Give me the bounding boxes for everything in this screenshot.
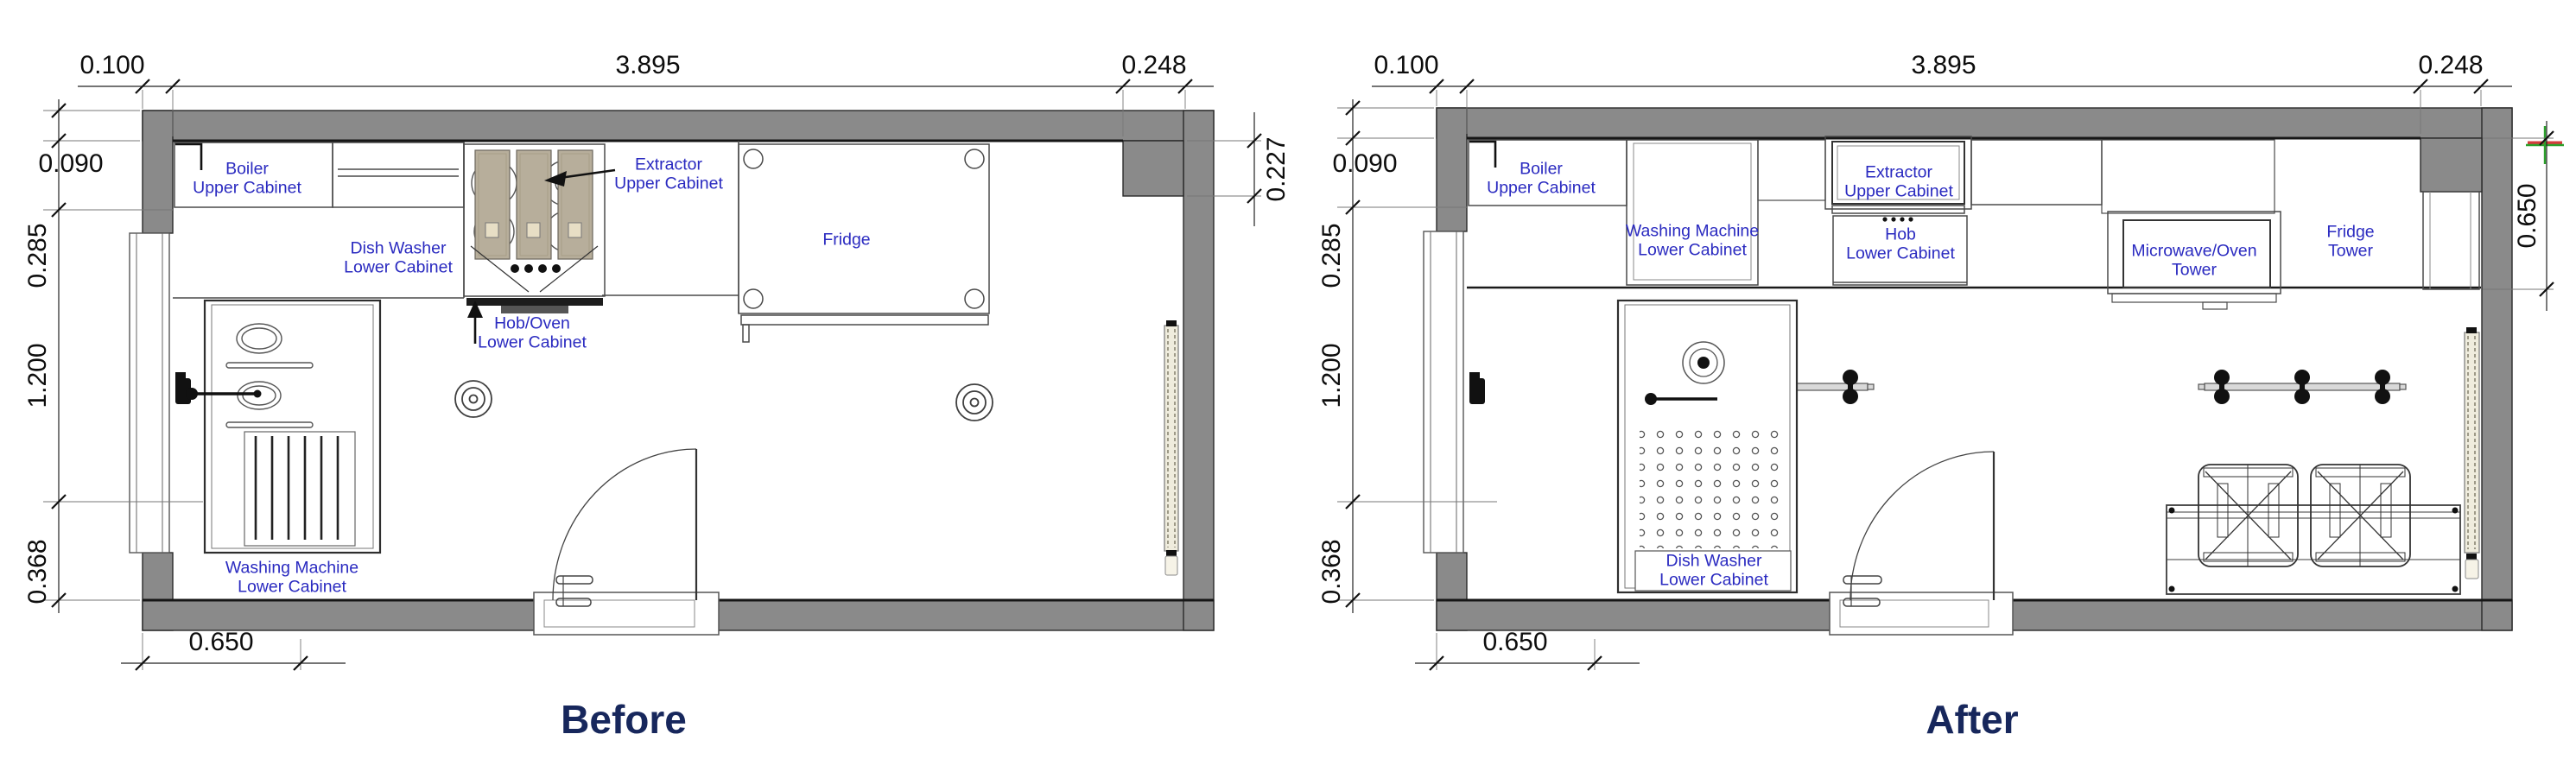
- after-walls: [1437, 108, 2512, 630]
- after-label-extractor: Extractor Upper Cabinet: [1844, 164, 1953, 201]
- before-dim-left-4: 0.368: [23, 539, 53, 604]
- before-dim-left-1: 0.090: [38, 149, 103, 179]
- before-label-extractor: Extractor Upper Cabinet: [614, 156, 723, 193]
- before-dim-right-1: 0.227: [1262, 136, 1291, 201]
- after-dim-top-span: 3.895: [1911, 51, 1976, 80]
- before-corner-column: [1123, 141, 1183, 196]
- after-window: [1424, 231, 1485, 553]
- before-label-washing-machine: Washing Machine Lower Cabinet: [225, 560, 358, 597]
- before-window: [130, 233, 191, 553]
- before-radiator: [1164, 320, 1178, 575]
- after-dim-right-1: 0.650: [2513, 183, 2542, 248]
- stool-2: [2311, 465, 2410, 566]
- drainer-dot-panel: [1640, 423, 1788, 548]
- after-sink-dishwasher-unit: [1618, 301, 1797, 592]
- before-label-dish-washer: Dish Washer Lower Cabinet: [344, 240, 453, 277]
- after-label-dish-washer: Dish Washer Lower Cabinet: [1659, 553, 1768, 590]
- after-label-washing-machine: Washing Machine Lower Cabinet: [1626, 223, 1759, 260]
- door-handle: [556, 576, 593, 584]
- before-label-hob-oven: Hob/Oven Lower Cabinet: [478, 315, 587, 352]
- after-label-fridge-tower: Fridge Tower: [2326, 224, 2374, 261]
- after-dim-left-3: 1.200: [1317, 343, 1347, 408]
- door-swing-arc: [553, 449, 696, 600]
- before-hob-extractor: [464, 144, 605, 313]
- after-title: After: [1926, 696, 2018, 743]
- after-stools: [2198, 465, 2410, 566]
- after-radiator: [2465, 327, 2479, 579]
- before-label-boiler: Boiler Upper Cabinet: [193, 161, 301, 198]
- after-label-microwave-oven: Microwave/Oven Tower: [2131, 243, 2256, 280]
- after-dim-left-2: 0.285: [1317, 223, 1347, 288]
- after-dim-top-right: 0.248: [2418, 51, 2483, 80]
- before-ceiling-lights: [455, 381, 993, 421]
- plan-linework: [0, 0, 2576, 772]
- after-label-hob: Hob Lower Cabinet: [1846, 226, 1955, 263]
- door-handle: [1843, 576, 1881, 584]
- before-title: Before: [561, 696, 687, 743]
- before-dim-left-3: 1.200: [23, 343, 53, 408]
- after-bench: [2167, 505, 2460, 594]
- before-label-fridge: Fridge: [822, 231, 870, 250]
- before-dim-top-left: 0.100: [79, 51, 144, 80]
- after-dim-top-left: 0.100: [1374, 51, 1438, 80]
- after-label-boiler: Boiler Upper Cabinet: [1487, 161, 1596, 198]
- window-latch: [1469, 378, 1485, 404]
- before-dim-left-2: 0.285: [23, 223, 53, 288]
- survey-crosshair-marker: [2526, 126, 2564, 164]
- after-fridge-tower: [2423, 192, 2479, 289]
- after-dim-left-1: 0.090: [1332, 149, 1397, 179]
- after-dim-left-4: 0.368: [1317, 539, 1347, 604]
- extractor-filter-panels: [475, 150, 593, 259]
- before-sink-washing-unit: [186, 301, 380, 553]
- door-swing-arc: [1850, 452, 1994, 600]
- floor-plan-comparison-sheet: 0.100 3.895 0.248 0.090 0.285 1.200 0.36…: [0, 0, 2576, 772]
- stool-1: [2198, 465, 2298, 566]
- after-door: [1830, 452, 2013, 635]
- before-door: [534, 449, 719, 635]
- after-corner-column: [2421, 138, 2482, 192]
- after-dim-bottom-1: 0.650: [1482, 628, 1547, 657]
- hob-control-knobs: [511, 264, 561, 273]
- before-dim-bottom-1: 0.650: [188, 628, 253, 657]
- before-dim-top-right: 0.248: [1121, 51, 1186, 80]
- before-dim-top-span: 3.895: [615, 51, 680, 80]
